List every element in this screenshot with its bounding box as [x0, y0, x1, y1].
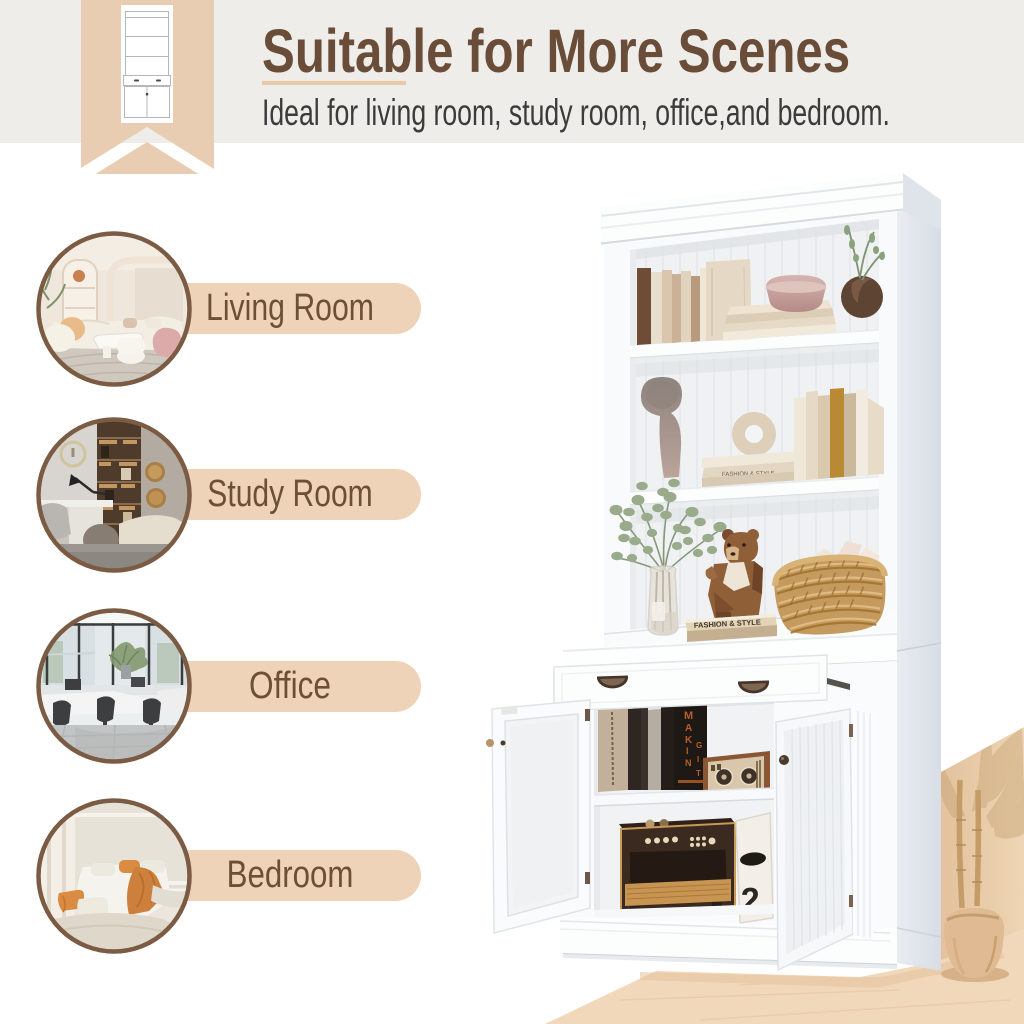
svg-text:K: K	[685, 735, 693, 746]
svg-text:T: T	[696, 769, 701, 778]
svg-text:I: I	[686, 746, 689, 756]
svg-text:G: G	[696, 741, 702, 750]
svg-text:I: I	[697, 755, 699, 764]
svg-text:A: A	[685, 723, 692, 734]
svg-text:M: M	[684, 710, 693, 722]
svg-text:N: N	[685, 758, 692, 768]
